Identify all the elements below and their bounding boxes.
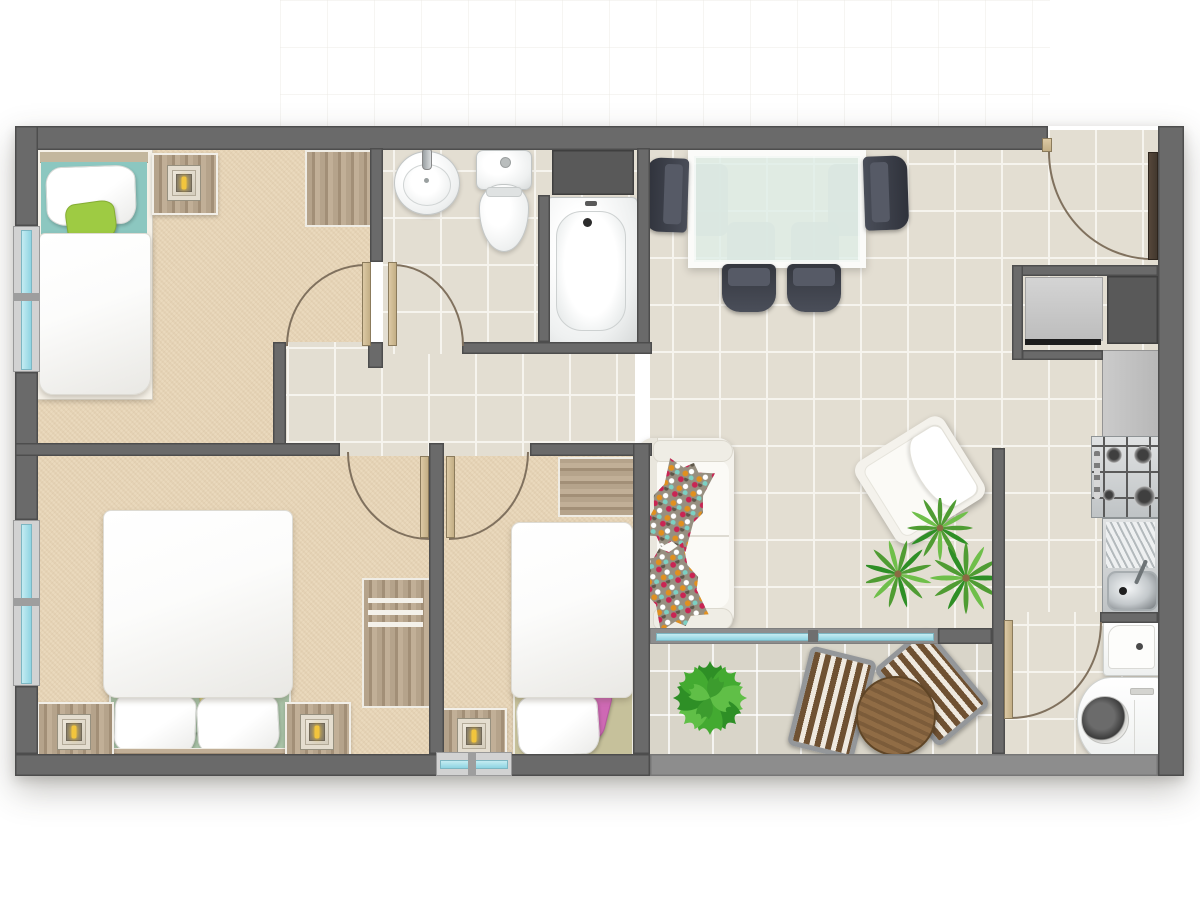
wall-left-upper: [15, 126, 38, 226]
glass-dining-table: [688, 150, 866, 268]
chair-seat: [663, 164, 683, 225]
wall-storage-bottom: [1022, 350, 1103, 360]
burner-top-right: [1134, 446, 1152, 464]
door-bedroom-top-left: [362, 262, 371, 346]
sliding-door-divider: [808, 630, 818, 642]
washing-machine: [1077, 677, 1162, 763]
door-bathroom: [388, 262, 397, 346]
burner-top-left: [1106, 447, 1122, 463]
floor-hallway: [273, 342, 635, 456]
bathtub-basin: [556, 211, 626, 331]
bath-shelf-block: [552, 150, 634, 195]
sliding-door-balcony: [650, 628, 938, 644]
burner-bottom-left: [1103, 489, 1115, 501]
wall-bedroom1-lower-right: [273, 342, 286, 456]
dresser-drawer-2: [368, 610, 423, 615]
door-master: [420, 456, 429, 538]
window-mullion: [13, 598, 40, 606]
middle-white-pillow: [515, 691, 601, 759]
lamp-bulb: [182, 177, 187, 190]
wall-between-bedrooms: [429, 443, 444, 754]
chair-seat: [870, 162, 890, 223]
window-master-bedroom: [13, 520, 40, 686]
master-lamp-right: [300, 714, 334, 750]
window-mullion: [468, 752, 476, 776]
wall-right: [1158, 126, 1184, 776]
dresser-drawer-1: [368, 598, 423, 603]
wall-sliding-stub: [938, 628, 992, 644]
plant-rosette: [866, 540, 932, 608]
sofa-arm-top: [653, 440, 733, 462]
sink-inner: [403, 164, 451, 206]
wall-left-lower: [15, 686, 38, 754]
wall-bathroom-left: [370, 148, 383, 262]
wall-middle-bedroom-right: [633, 443, 650, 754]
sink-faucet: [422, 148, 432, 170]
sliding-door-glass-left: [656, 633, 810, 641]
dining-chair-right: [863, 155, 910, 230]
master-white-pillow-right: [195, 692, 280, 756]
wall-storage-top: [1012, 265, 1158, 276]
master-dresser: [362, 578, 433, 708]
kitchen-sink-unit: [1102, 518, 1161, 614]
washer-seam: [1134, 700, 1135, 756]
window-mullion: [13, 293, 40, 301]
bathroom-sink: [394, 151, 460, 215]
middle-lamp: [457, 718, 491, 754]
bed-duvet: [39, 233, 151, 395]
wall-tub-left: [538, 195, 550, 342]
wall-bathroom-right: [637, 148, 650, 354]
bathtub-drain: [583, 218, 592, 227]
dining-chair-bottom-1: [722, 264, 776, 312]
stove-knobs: [1094, 451, 1100, 499]
lamp-bulb: [315, 726, 320, 739]
double-bed-duvet: [103, 510, 293, 698]
jamb-entry: [1042, 138, 1052, 152]
balcony-round-table: [856, 676, 936, 756]
wall-master-top: [15, 443, 340, 456]
shower-tray-inner: [1108, 625, 1155, 669]
washer-controls: [1130, 688, 1154, 695]
window-bedroom-top-left: [13, 226, 40, 372]
door-middle-bedroom: [446, 456, 455, 538]
door-laundry: [1004, 620, 1013, 719]
chair-seat: [793, 268, 835, 286]
wall-laundry-stub: [1100, 612, 1158, 623]
lamp-top-left: [167, 165, 201, 201]
shower-drain: [1136, 643, 1143, 650]
single-bed-middle-duvet: [511, 522, 633, 698]
wall-top: [15, 126, 1048, 150]
burner-bottom-right: [1134, 486, 1155, 507]
closet-top-left: [305, 150, 376, 227]
wall-bathroom-bottom: [462, 342, 652, 354]
wall-bottom-left: [15, 754, 650, 776]
window-middle-bedroom: [436, 752, 512, 776]
wall-bottom-balcony: [650, 754, 1158, 776]
master-white-pillow-left: [113, 691, 197, 756]
door-entry: [1148, 152, 1158, 260]
lamp-bulb: [472, 730, 477, 743]
sink-drain-hole: [1119, 587, 1127, 595]
bathtub: [546, 197, 638, 345]
chair-seat: [728, 268, 770, 286]
lamp-bulb: [72, 726, 77, 739]
washer-door: [1081, 696, 1129, 744]
dining-chair-bottom-2: [787, 264, 841, 312]
sink-drain: [424, 178, 429, 183]
dining-chair-left: [645, 157, 690, 232]
sliding-door-glass-right: [818, 633, 934, 641]
floor-plan-canvas: [0, 0, 1200, 900]
shower-tray: [1103, 620, 1162, 676]
gas-stove: [1091, 436, 1162, 518]
kitchen-counter: [1102, 350, 1160, 438]
dresser-drawer-3: [368, 622, 423, 627]
closet-middle-bedroom: [558, 457, 637, 517]
plant-rosette: [907, 498, 973, 561]
bathtub-faucet: [585, 201, 597, 206]
storage-cabinet-panel: [1025, 277, 1103, 341]
single-bed-top-left: [37, 148, 153, 400]
master-lamp-left: [57, 714, 91, 750]
monstera-plant: [660, 648, 760, 746]
wall-storage-left: [1012, 265, 1023, 360]
dark-shaft-block: [1107, 276, 1158, 344]
storage-cabinet-rail: [1025, 339, 1101, 345]
toilet-flush-button: [500, 157, 511, 168]
toilet-seat-line: [486, 187, 522, 197]
ghost-tile-grid: [280, 0, 1050, 126]
sink-basin: [1107, 571, 1158, 611]
